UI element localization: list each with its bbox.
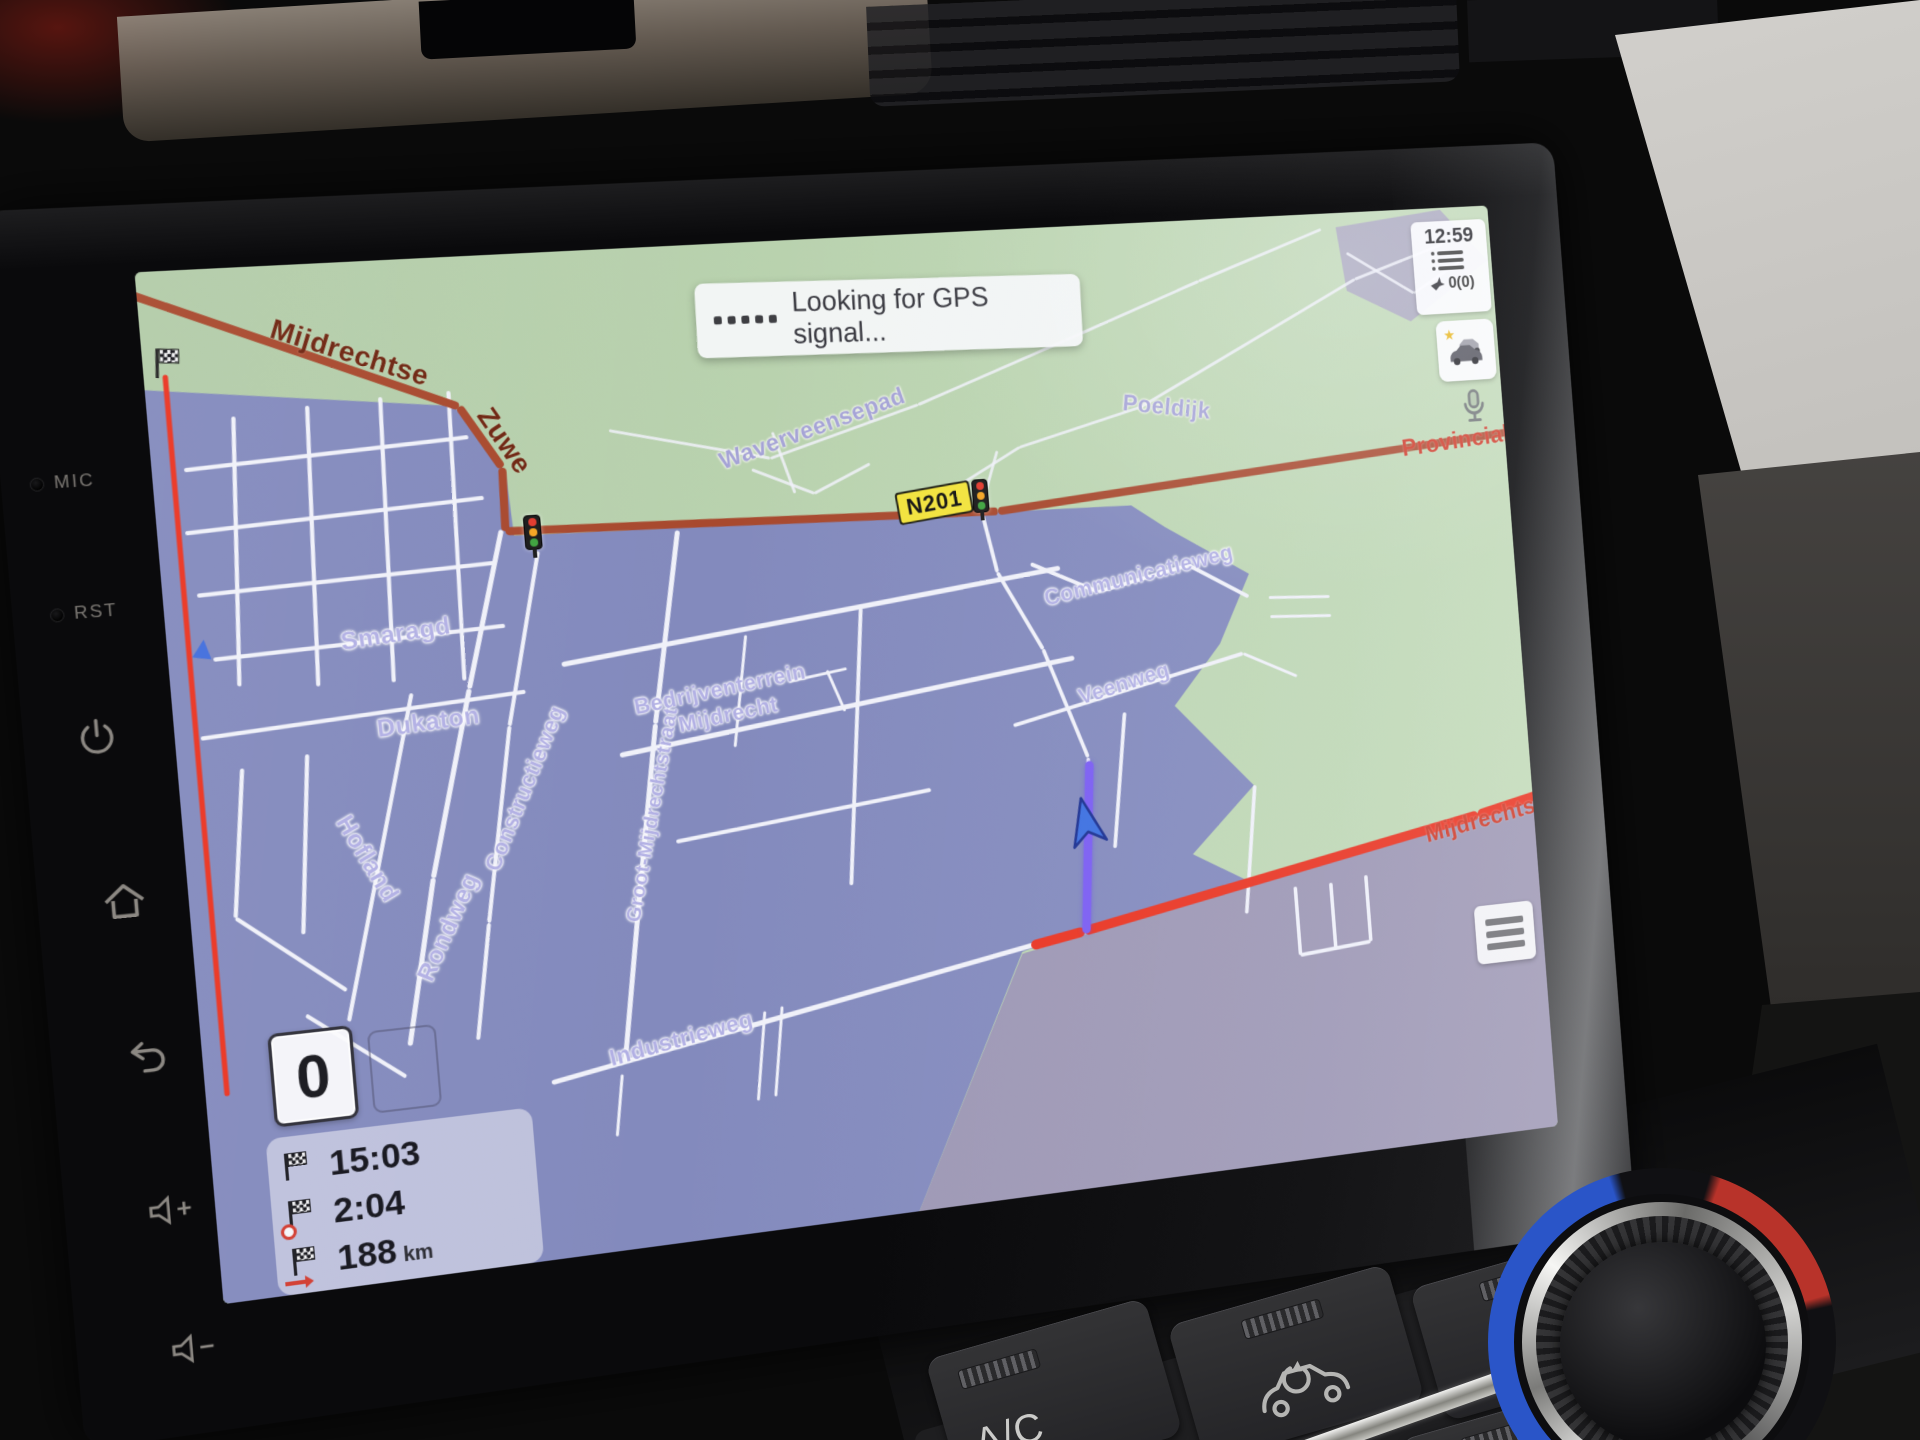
distance-value: 188: [336, 1231, 399, 1279]
time-remaining: 2:04: [332, 1182, 406, 1231]
offroute-position-icon: [192, 639, 213, 660]
map-label: Mijdrechtse: [267, 313, 433, 393]
map-label: Veenweg: [1075, 656, 1172, 710]
map-label: Constructieweg: [479, 702, 570, 875]
gps-counter: 0(0): [1448, 272, 1476, 292]
empty-indicator-slot: [367, 1024, 442, 1114]
map-label: Groot-Mijdrechtstraat: [623, 706, 684, 924]
head-unit-bezel: MIC RST: [0, 142, 1636, 1440]
gps-satellite-icon: [1430, 276, 1447, 292]
reset-label: RST: [73, 600, 118, 623]
map-label: Smaragd: [339, 612, 453, 657]
knob-face: [1560, 1242, 1766, 1440]
route-list-icon: [1437, 250, 1464, 270]
reset-hole: RST: [49, 600, 119, 626]
traffic-button[interactable]: ★: [1435, 318, 1497, 382]
volume-up-button[interactable]: [145, 1190, 197, 1230]
power-icon: [72, 714, 122, 762]
traffic-light-icon: [971, 479, 990, 513]
traffic-star-icon: ★: [1443, 326, 1456, 344]
gps-status-banner: Looking for GPS signal...: [694, 274, 1083, 359]
map-label: Waverveensepad: [716, 382, 910, 476]
recirculation-icon: [1243, 1337, 1360, 1425]
air-vents: [866, 0, 1460, 107]
map-label: Industrieweg: [607, 1006, 756, 1072]
route-flag-icon: [155, 349, 184, 381]
home-button[interactable]: [98, 877, 152, 926]
gps-signal-dots-icon: [714, 315, 777, 325]
menu-button[interactable]: [1474, 900, 1537, 965]
temperature-knob[interactable]: [1488, 1168, 1836, 1440]
time-remaining-flag-icon: [286, 1197, 325, 1233]
home-icon: [98, 877, 152, 926]
reset-hole-icon: [49, 607, 64, 622]
arrival-flag-icon: [282, 1150, 321, 1185]
distance-flag-icon: [290, 1245, 328, 1281]
voice-mic-icon[interactable]: [1460, 387, 1489, 430]
volume-down-icon: [168, 1328, 220, 1368]
map-label: Communicatieweg: [1042, 539, 1236, 612]
ac-button-ridge: [957, 1348, 1041, 1390]
route-info-panel: 15:03 2:04 188 km: [265, 1107, 544, 1296]
volume-up-icon: [145, 1190, 197, 1230]
mic-hole-icon: [29, 477, 45, 492]
gps-status-text: Looking for GPS signal...: [791, 279, 1083, 351]
volume-down-button[interactable]: [168, 1328, 220, 1368]
mic-hole: MIC: [29, 470, 96, 495]
return-button[interactable]: [120, 1035, 171, 1078]
head-unit: MIC RST: [0, 142, 1636, 1440]
map-label: Poeldijk: [1122, 390, 1211, 426]
recirculation-ridge: [1240, 1298, 1324, 1340]
map-label: Hofland: [329, 811, 404, 908]
distance-unit: km: [402, 1240, 434, 1267]
status-panel[interactable]: 12:59 0(0): [1410, 219, 1492, 315]
menu-icon: [1485, 915, 1523, 926]
speed-indicator: 0: [267, 1025, 359, 1128]
mic-label: MIC: [53, 470, 95, 493]
navigation-screen[interactable]: MijdrechtseZuweWaverveensepadPoeldijkPro…: [134, 206, 1558, 1305]
car-dashboard-photo: MIC RST: [0, 0, 1920, 1440]
map-label: Rondweg: [412, 869, 486, 986]
traffic-light-icon: [523, 514, 543, 550]
map-label: Dukaton: [375, 701, 481, 744]
ac-label: A/C: [970, 1404, 1049, 1440]
power-button[interactable]: [72, 714, 122, 762]
map-label: Mijdrechtse: [1423, 789, 1550, 849]
clock: 12:59: [1423, 222, 1474, 249]
map-label: Zuwe: [470, 402, 538, 480]
arrival-time: 15:03: [328, 1133, 422, 1184]
return-icon: [120, 1035, 171, 1078]
